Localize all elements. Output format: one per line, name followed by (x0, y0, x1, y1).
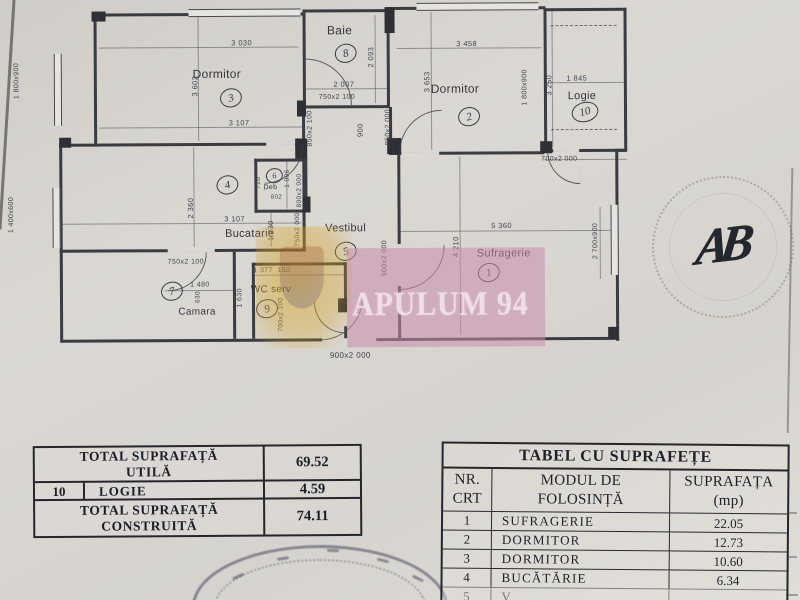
wall-pier (59, 138, 71, 148)
dimension-label: 630 (194, 291, 201, 303)
dimension-label: 720 (255, 177, 262, 189)
dimension-label: 2 700x900 (592, 223, 599, 259)
row-usage: SUFRAGERIE (492, 512, 670, 532)
header-line: (mp) (713, 492, 744, 511)
dimension-label: 1 480 (190, 281, 210, 288)
table-row: 1SUFRAGERIE22.05 (443, 510, 787, 532)
dimension-label: 800x2 000 (296, 174, 303, 208)
total-built-value: 74.11 (265, 499, 360, 535)
header-line: FOLOSINȚĂ (538, 490, 624, 510)
row-nr: 1 (443, 511, 492, 529)
dimension-label: 1 400x600 (8, 197, 15, 233)
row-usage: BUCĂTĂRIE (491, 569, 669, 589)
room-number: 10 (569, 99, 600, 125)
dimension-label: 850x2 100 (307, 110, 314, 146)
room-name: Dormitor (431, 82, 479, 96)
areas-table-header: NR. CRT MODUL DE FOLOSINȚĂ SUPRAFAȚA (mp… (443, 469, 787, 514)
dimension-label: 2 360 (186, 198, 195, 219)
table-row: 5V (442, 586, 786, 600)
room-name: Deb (264, 184, 278, 191)
col-header-nr-crt: NR. CRT (443, 469, 492, 511)
label-line: CONSTRUITĂ (101, 518, 197, 534)
table-row: 3DORMITOR10.60 (443, 548, 787, 570)
logie-nr: 10 (35, 483, 85, 500)
dimension-label: 5 360 (491, 221, 512, 230)
total-usable-label: TOTAL SUPRAFAȚĂ UTILĂ (35, 447, 265, 482)
wall (93, 14, 97, 146)
wall-pier (91, 12, 105, 22)
wall (579, 149, 627, 152)
crest-watermark-shield (280, 246, 324, 308)
wall (439, 151, 544, 155)
bottom-stamp-arc (192, 545, 448, 600)
scan-artifact (786, 594, 798, 596)
row-nr: 5 (442, 587, 491, 600)
header-line: SUPRAFAȚA (684, 473, 773, 493)
row-area: 12.73 (670, 532, 787, 551)
row-nr: 4 (442, 568, 491, 586)
wall (397, 152, 400, 244)
row-usage: DORMITOR (492, 531, 670, 551)
dimension-label: 1 006 (284, 169, 291, 187)
dimension-label: 802 (271, 195, 282, 201)
window (611, 205, 619, 275)
wall-pier (384, 7, 394, 33)
row-area: 6.34 (669, 570, 786, 589)
wall (623, 8, 627, 151)
table-row: TOTAL SUPRAFAȚĂ CONSTRUITĂ 74.11 (35, 497, 360, 536)
wall-pier (302, 196, 310, 212)
dimension-label: 1 845 (566, 74, 587, 83)
wall (302, 9, 388, 12)
round-stamp: AB (652, 176, 794, 318)
scan-artifact (787, 512, 797, 514)
dimension-label: 850x2 000 (384, 109, 391, 145)
dimension-label: 900 (356, 123, 365, 137)
label-line: TOTAL SUPRAFAȚĂ (80, 502, 219, 518)
dimension-label: 1 800x900 (521, 69, 528, 105)
dimension-line (99, 127, 303, 129)
dimension-label: 900x2 000 (330, 351, 371, 360)
areas-table-body: 1SUFRAGERIE22.052DORMITOR12.733DORMITOR1… (442, 510, 787, 600)
row-usage: DORMITOR (492, 550, 670, 570)
logie-value: 4.59 (265, 481, 360, 499)
areas-table: TABEL CU SUPRAFEȚE NR. CRT MODUL DE FOLO… (440, 441, 789, 600)
stamp-smudge (327, 549, 339, 552)
balcony-railing-dash (551, 129, 617, 130)
label-line: TOTAL SUPRAFAȚĂ (79, 448, 218, 464)
header-line: CRT (453, 490, 482, 509)
room-name: Baie (327, 23, 352, 37)
col-header-usage: MODUL DE FOLOSINȚĂ (492, 469, 670, 513)
room-number: 3 (218, 86, 244, 110)
dimension-label: 3 107 (229, 118, 250, 127)
dimension-label: 700x2 000 (541, 156, 577, 163)
table-row: 10 LOGIE 4.59 (35, 479, 360, 499)
row-nr: 3 (443, 549, 492, 567)
row-nr: 2 (443, 530, 492, 548)
wall (94, 143, 266, 147)
row-area: 10.60 (670, 551, 787, 570)
dimension-label: 1 800x900 (13, 63, 20, 99)
dimension-label: 2 007 (333, 80, 354, 89)
row-usage: V (491, 588, 669, 600)
room-name: Logie (568, 90, 596, 102)
dimension-line (400, 230, 616, 232)
room-name: Camara (178, 306, 215, 317)
total-usable-value: 69.52 (265, 446, 360, 480)
col-header-area: SUPRAFAȚA (mp) (670, 470, 787, 513)
dimension-label: 750x2 100 (168, 259, 204, 266)
table-row: TOTAL SUPRAFAȚĂ UTILĂ 69.52 (35, 446, 360, 481)
wall (545, 8, 626, 11)
room-name: Dormitor (193, 67, 241, 81)
table-row: 2DORMITOR12.73 (443, 529, 787, 551)
row-area: 22.05 (670, 513, 787, 532)
wall (60, 249, 168, 253)
door-arc (399, 110, 442, 153)
dimension-label: 3 030 (231, 38, 252, 47)
totals-table: TOTAL SUPRAFAȚĂ UTILĂ 69.52 10 LOGIE 4.5… (33, 444, 363, 538)
window (54, 54, 62, 126)
window (188, 9, 300, 18)
header-line: MODUL DE (541, 472, 622, 491)
scanned-page: APULUM 94 3 0303 6023 1072 0932 007750x2… (0, 0, 800, 600)
room-number: 2 (456, 105, 482, 129)
window (52, 188, 60, 248)
scan-artifact (789, 556, 797, 558)
label-line: UTILĂ (126, 464, 172, 480)
dimension-label: 750x2 100 (319, 94, 355, 101)
row-area (669, 589, 786, 600)
header-line: NR. (455, 471, 481, 490)
wall-pier (608, 327, 618, 339)
balcony-railing-dash (551, 25, 617, 26)
dimension-label: 3 458 (456, 39, 477, 48)
dimension-line (600, 207, 601, 279)
areas-table-title: TABEL CU SUPRAFEȚE (443, 444, 787, 472)
watermark-text: APULUM 94 (352, 285, 529, 324)
dimension-label: 3 250 (544, 75, 553, 96)
room-number: 4 (214, 173, 240, 197)
handwritten-signature: AB (693, 211, 749, 276)
dimension-label: 2 093 (366, 47, 375, 68)
window (416, 2, 538, 11)
total-built-label: TOTAL SUPRAFAȚĂ CONSTRUITĂ (35, 500, 265, 537)
dimension-label: 3 107 (224, 214, 245, 223)
wall (303, 105, 389, 108)
room-number: 8 (333, 41, 359, 65)
dimension-label: 1 630 (236, 288, 243, 308)
